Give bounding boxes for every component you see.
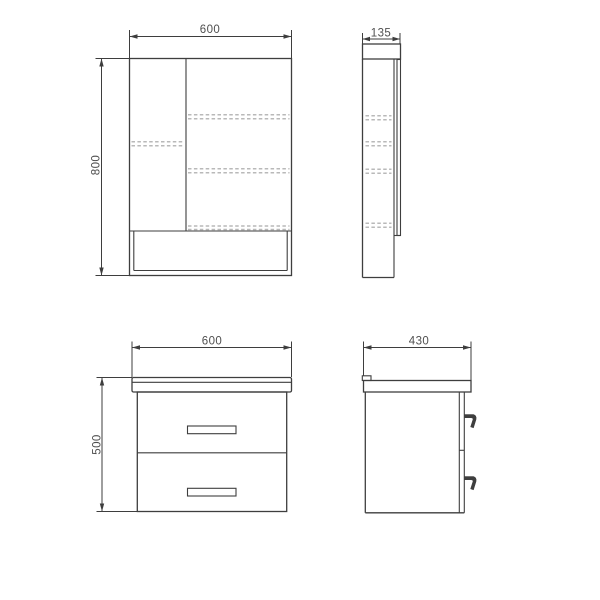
mirror-cabinet-body bbox=[130, 59, 292, 276]
hidden-shelf-lines bbox=[132, 115, 290, 230]
vanity-side-depth-dimension: 430 bbox=[364, 336, 472, 381]
arrowhead-icon bbox=[100, 378, 104, 386]
mirror-front-width-label: 600 bbox=[200, 24, 220, 36]
arrowhead-icon bbox=[284, 34, 292, 38]
mirror-front-width-dimension: 600 bbox=[130, 24, 292, 58]
technical-drawing-canvas: 600 800 bbox=[0, 0, 600, 600]
arrowhead-icon bbox=[130, 34, 138, 38]
arrowhead-icon bbox=[99, 59, 103, 67]
mirror-front-height-dimension: 800 bbox=[91, 59, 130, 276]
vanity-body-profile bbox=[365, 392, 464, 513]
vanity-front-view: 600 500 bbox=[92, 336, 292, 512]
mirror-front-height-label: 800 bbox=[91, 155, 103, 175]
vanity-side-depth-label: 430 bbox=[409, 336, 429, 348]
hidden-shelf-lines bbox=[366, 116, 392, 228]
arrowhead-icon bbox=[393, 37, 401, 41]
arrowhead-icon bbox=[284, 345, 292, 349]
drawer-handle-top bbox=[188, 426, 237, 434]
arrowhead-icon bbox=[100, 504, 104, 512]
arrowhead-icon bbox=[363, 37, 371, 41]
drawer-handle-bottom bbox=[188, 488, 237, 496]
mirror-cabinet-front-view: 600 800 bbox=[91, 24, 292, 276]
arrowhead-icon bbox=[463, 345, 471, 349]
vanity-front-width-label: 600 bbox=[202, 336, 222, 348]
drawer-handle-profile-top bbox=[464, 415, 476, 428]
washbasin-top-profile bbox=[362, 376, 471, 392]
drawer-handle-profile-bottom bbox=[464, 477, 476, 490]
arrowhead-icon bbox=[364, 345, 372, 349]
vanity-front-height-dimension: 500 bbox=[92, 378, 138, 512]
vanity-front-height-label: 500 bbox=[92, 434, 104, 454]
cabinet-top-profile bbox=[363, 44, 401, 59]
mirror-side-depth-label: 135 bbox=[371, 28, 391, 40]
vanity-front-width-dimension: 600 bbox=[132, 336, 292, 378]
vanity-side-view: 430 bbox=[362, 336, 476, 513]
washbasin-top bbox=[132, 378, 292, 393]
arrowhead-icon bbox=[99, 268, 103, 276]
mirror-side-depth-dimension: 135 bbox=[363, 28, 401, 45]
arrowhead-icon bbox=[132, 345, 140, 349]
mirror-cabinet-side-view: 135 bbox=[363, 28, 401, 278]
furniture-dimension-drawing: 600 800 bbox=[0, 0, 600, 600]
open-shelf bbox=[134, 231, 287, 271]
